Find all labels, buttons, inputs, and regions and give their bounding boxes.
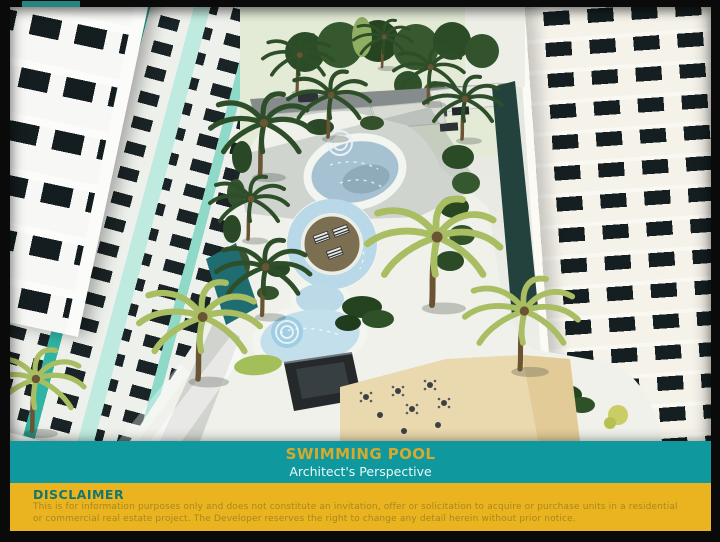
caption-title: SWIMMING POOL <box>10 446 711 463</box>
lounger-island <box>303 215 361 273</box>
disclaimer-line-2: or commercial real estate project. The D… <box>33 514 687 526</box>
caption-banner: SWIMMING POOL Architect's Perspective <box>10 441 711 483</box>
architectural-rendering <box>10 7 711 441</box>
courtyard-scene <box>10 7 711 441</box>
disclaimer-line-1: This is for information purposes only an… <box>33 502 687 514</box>
slide-frame: SWIMMING POOL Architect's Perspective DI… <box>0 0 720 542</box>
caption-subtitle: Architect's Perspective <box>10 464 711 479</box>
disclaimer-banner: DISCLAIMER This is for information purpo… <box>10 483 711 531</box>
disclaimer-heading: DISCLAIMER <box>33 488 687 502</box>
